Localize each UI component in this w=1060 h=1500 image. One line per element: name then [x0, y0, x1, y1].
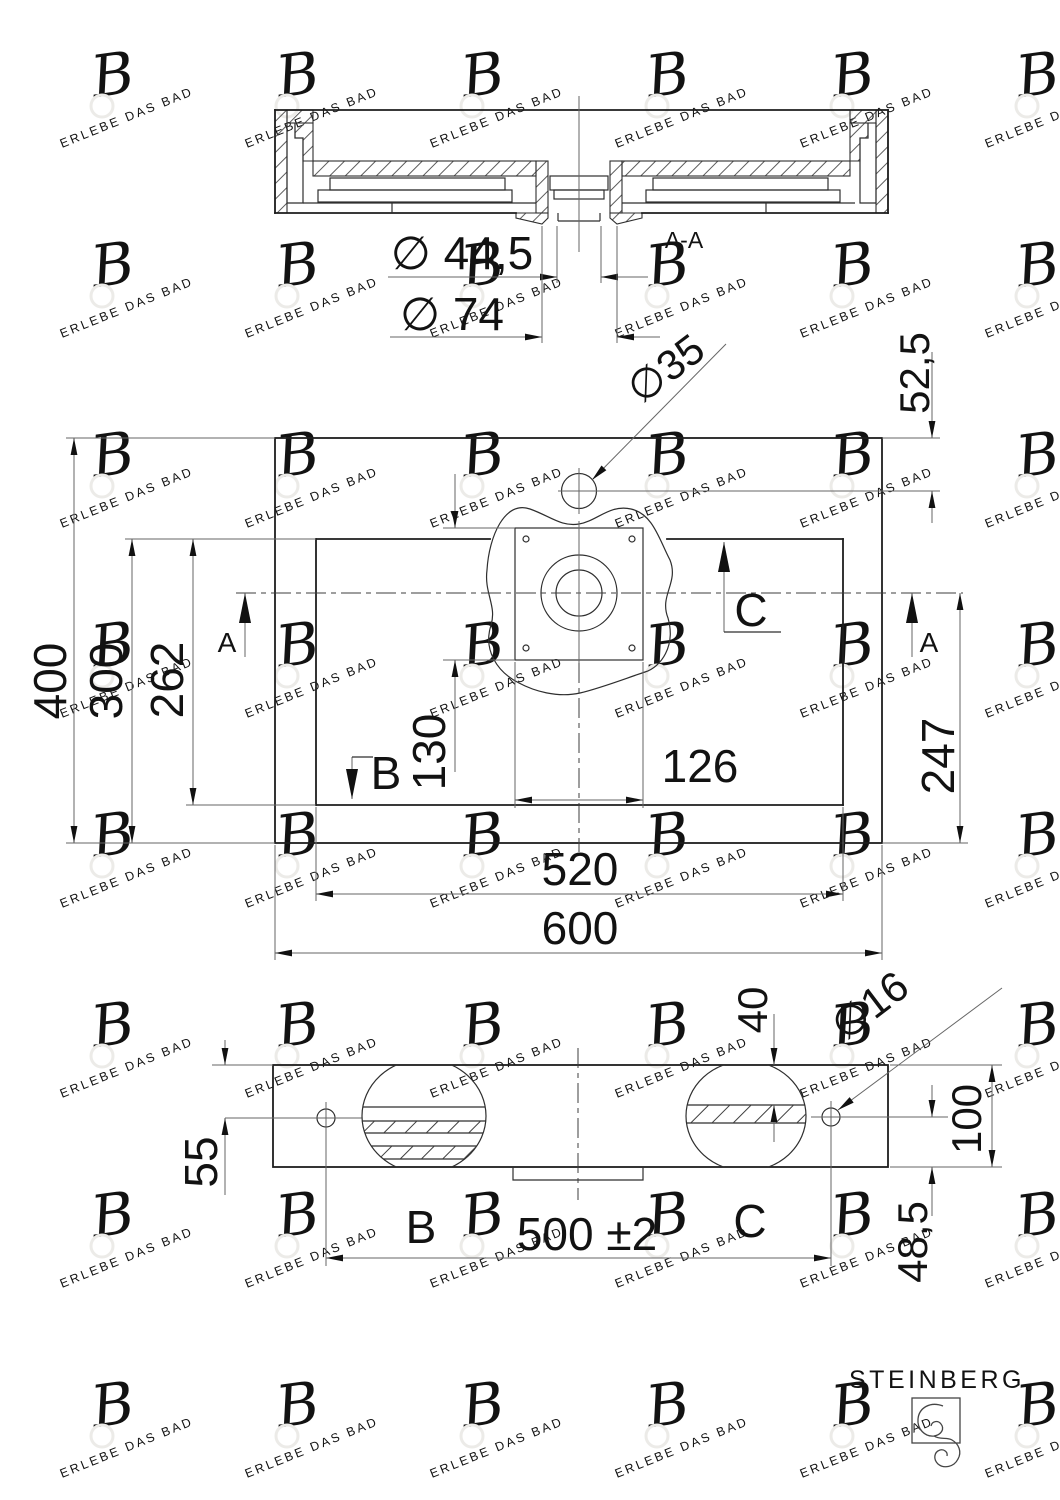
- dim-tap-hole-offset: 52,5: [891, 332, 938, 414]
- section-title: A-A: [665, 227, 704, 253]
- detail-label-c: C: [733, 1195, 766, 1247]
- dim-basin-depth-outer: 300: [80, 643, 132, 720]
- dim-flange-height: 130: [403, 714, 455, 791]
- marker-a-left: A: [218, 627, 237, 658]
- drain-boss-right: [610, 213, 642, 224]
- brand-name: STEINBERG: [849, 1366, 1025, 1394]
- dim-flange-width: 126: [662, 740, 739, 792]
- marker-c: C: [734, 584, 767, 636]
- logo-swirl-icon: [918, 1404, 960, 1466]
- detail-oval-c: [680, 1061, 812, 1171]
- drawing-page: B ERLEBE DAS BAD: [0, 0, 1060, 1500]
- dim-drain-flange-diameter: ∅ 74: [400, 288, 504, 340]
- dim-tap-hole-diameter: ∅35: [618, 325, 713, 413]
- top-view-section-markers: A A C B: [218, 542, 939, 799]
- dim-basin-depth-inner: 262: [141, 642, 193, 719]
- dim-hole-top-offset: 55: [175, 1136, 227, 1187]
- washbasin-technical-drawing: B ERLEBE DAS BAD: [0, 0, 1060, 1500]
- dim-overall-depth: 400: [24, 643, 76, 720]
- dim-drain-inner-diameter: ∅ 44,5: [391, 227, 533, 279]
- marker-b: B: [371, 747, 402, 799]
- detail-label-b: B: [406, 1201, 437, 1253]
- drain-boss-left: [516, 213, 548, 224]
- dim-hole-bottom-offset: 48,5: [889, 1201, 936, 1283]
- basin-slab-left: [313, 161, 536, 176]
- dim-fixing-hole-spacing: 500 ±2: [517, 1208, 657, 1260]
- marker-a-right: A: [920, 627, 939, 658]
- dim-overall-width: 600: [542, 902, 619, 954]
- dim-panel-top-offset: 40: [729, 987, 776, 1034]
- dim-centerline-to-back: 247: [912, 718, 964, 795]
- dim-basin-opening-width: 520: [542, 843, 619, 895]
- dim-overall-height: 100: [943, 1084, 990, 1154]
- basin-slab-right: [622, 161, 850, 176]
- section-view-aa: ∅ 44,5 ∅ 74 A-A: [275, 96, 888, 343]
- section-hatched-regions: [275, 110, 888, 224]
